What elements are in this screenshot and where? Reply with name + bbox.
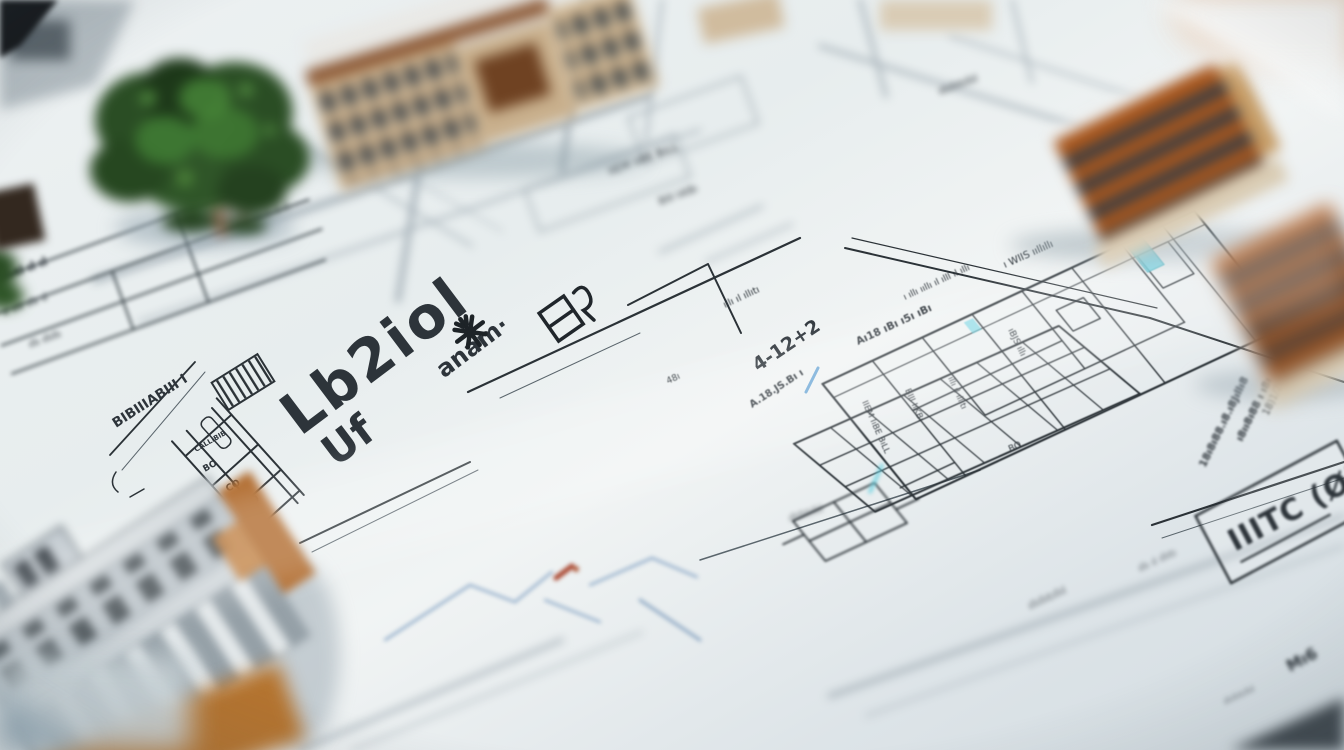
scene-canvas: ıllı ıllıllı ıllıtl ıl ıl IIEM IıBE BıLL… xyxy=(0,0,1344,750)
vignette-overlay xyxy=(0,0,1344,750)
photo-blueprint-scene: ıllı ıllıllı ıllıtl ıl ıl IIEM IıBE BıLL… xyxy=(0,0,1344,750)
